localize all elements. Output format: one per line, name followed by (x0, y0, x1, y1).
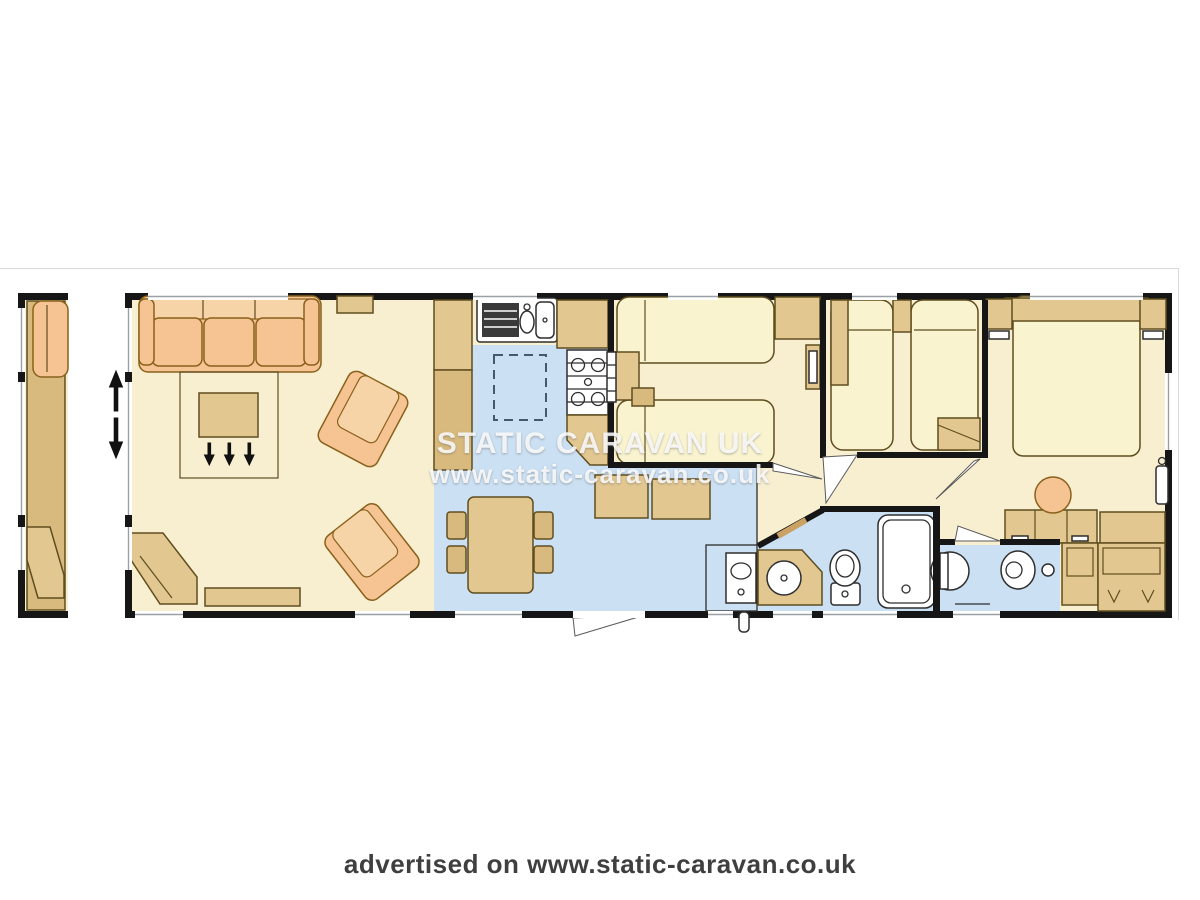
headboard (1005, 298, 1148, 321)
mirror (1156, 466, 1168, 504)
step-handle (739, 612, 749, 632)
fire-box (199, 393, 258, 437)
bathtub (878, 515, 935, 608)
side-unit (1100, 512, 1165, 543)
wardrobe (1098, 543, 1165, 611)
sideboard (652, 479, 710, 519)
footer-advertised-text: advertised on www.static-caravan.co.uk (0, 849, 1200, 880)
radiator (607, 352, 616, 402)
sofa-back-cushions (150, 299, 308, 319)
wc-room (726, 553, 756, 632)
counter-right-of-sink (557, 300, 608, 348)
dining-chair (534, 512, 553, 539)
toilet (830, 550, 860, 605)
cropped-plan-sliver (18, 293, 68, 618)
sink-bowl-large (536, 302, 554, 338)
sink-unit (477, 298, 557, 342)
cooker (567, 350, 608, 415)
wardrobe-strip (831, 300, 848, 385)
bedside-shelf (893, 300, 911, 332)
dining-table (468, 497, 533, 593)
dining-chair (447, 512, 466, 539)
vertical-double-arrow-icon (110, 371, 123, 458)
wardrobe (775, 297, 820, 339)
sofa-fragment (33, 301, 68, 377)
entrance-door-swing (573, 615, 645, 636)
wall-shelf (337, 296, 373, 313)
stool (1035, 477, 1071, 513)
bedside-cabinet (1140, 299, 1166, 329)
sofa-arm-right (304, 299, 319, 365)
sideboard (595, 475, 648, 518)
dining-chair (447, 546, 466, 573)
main-floorplan (125, 293, 1172, 636)
single-bed (617, 400, 774, 464)
corner-basin (767, 561, 801, 595)
sofa-arm-left (139, 299, 154, 365)
single-bed (617, 297, 774, 363)
entrance-opening (573, 611, 645, 618)
caravan-floorplan-page: STATIC CARAVAN UK www.static-caravan.co.… (0, 0, 1200, 900)
bedside-shelf (632, 388, 654, 406)
sink-bowl-small (520, 311, 534, 333)
floorplan-drawing (0, 0, 1200, 900)
dining-chair (534, 546, 553, 573)
bedside-cabinet (986, 299, 1012, 329)
counter-left-lower (434, 370, 472, 470)
low-shelf (205, 588, 300, 606)
counter-left-upper (434, 300, 472, 370)
